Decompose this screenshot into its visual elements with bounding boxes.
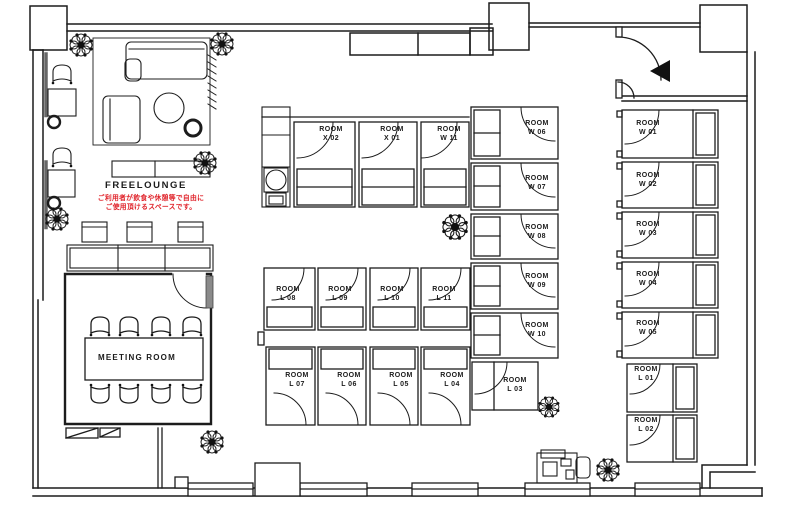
room-label-l07: ROOM L 07: [285, 372, 308, 389]
room-label-w11: ROOM W 11: [437, 126, 460, 143]
room-label-l11: ROOM L 11: [432, 286, 455, 303]
room-w05: [617, 312, 718, 358]
room-label-w08: ROOM W 08: [525, 224, 548, 241]
curtain-zigzag: [208, 55, 216, 109]
entrance-door: [616, 27, 661, 98]
floorplan-canvas: [0, 0, 800, 508]
plant-icon: [193, 151, 216, 174]
room-label-w04: ROOM W 04: [636, 271, 659, 288]
window-sills: [175, 463, 700, 496]
plants: [45, 32, 619, 481]
room-label-l01: ROOM L 01: [634, 366, 657, 383]
plant-icon: [45, 207, 68, 230]
room-label-l05: ROOM L 05: [389, 372, 412, 389]
freelounge-note: ご利用者が飲食や休憩等で自由に ご使用頂けるスペースです。: [98, 195, 204, 212]
room-w01: [617, 110, 718, 158]
round-table: [154, 93, 184, 123]
storage-area: [66, 428, 162, 488]
room-label-w05: ROOM W 05: [636, 320, 659, 337]
room-label-l09: ROOM L 09: [328, 286, 351, 303]
entrance-arrow-icon: [650, 60, 670, 82]
plant-icon: [210, 32, 233, 55]
room-label-w06: ROOM W 06: [525, 120, 548, 137]
room-label-w09: ROOM W 09: [525, 273, 548, 290]
room-w03: [617, 212, 718, 258]
floor-plan: FREELOUNGE ご利用者が飲食や休憩等で自由に ご使用頂けるスペースです。…: [0, 0, 800, 508]
room-label-w01: ROOM W 01: [636, 120, 659, 137]
freelounge-furniture: [48, 38, 216, 271]
plant-icon: [539, 397, 560, 418]
room-label-w02: ROOM W 02: [636, 172, 659, 189]
room-label-l06: ROOM L 06: [337, 372, 360, 389]
room-label-l03: ROOM L 03: [503, 377, 526, 394]
room-label-w07: ROOM W 07: [525, 175, 548, 192]
plant-icon: [442, 214, 468, 240]
room-label-x02: ROOM X 02: [319, 126, 342, 143]
copier-icon: [532, 450, 590, 483]
kitchenette: [262, 107, 290, 207]
meeting-room: [65, 274, 213, 424]
room-label-l04: ROOM L 04: [440, 372, 463, 389]
freelounge-label: FREELOUNGE: [105, 180, 187, 191]
sink-icon: [266, 170, 286, 190]
room-w02: [617, 162, 718, 208]
room-label-l08: ROOM L 08: [276, 286, 299, 303]
room-label-w10: ROOM W 10: [525, 322, 548, 339]
plant-icon: [596, 458, 619, 481]
room-w04: [617, 262, 718, 308]
plant-icon: [200, 430, 223, 453]
room-label-w03: ROOM W 03: [636, 221, 659, 238]
room-label-l10: ROOM L 10: [380, 286, 403, 303]
plant-icon: [69, 33, 92, 56]
room-label-l02: ROOM L 02: [634, 417, 657, 434]
room-label-x01: ROOM X 01: [380, 126, 403, 143]
meeting-room-label: MEETING ROOM: [98, 353, 176, 362]
